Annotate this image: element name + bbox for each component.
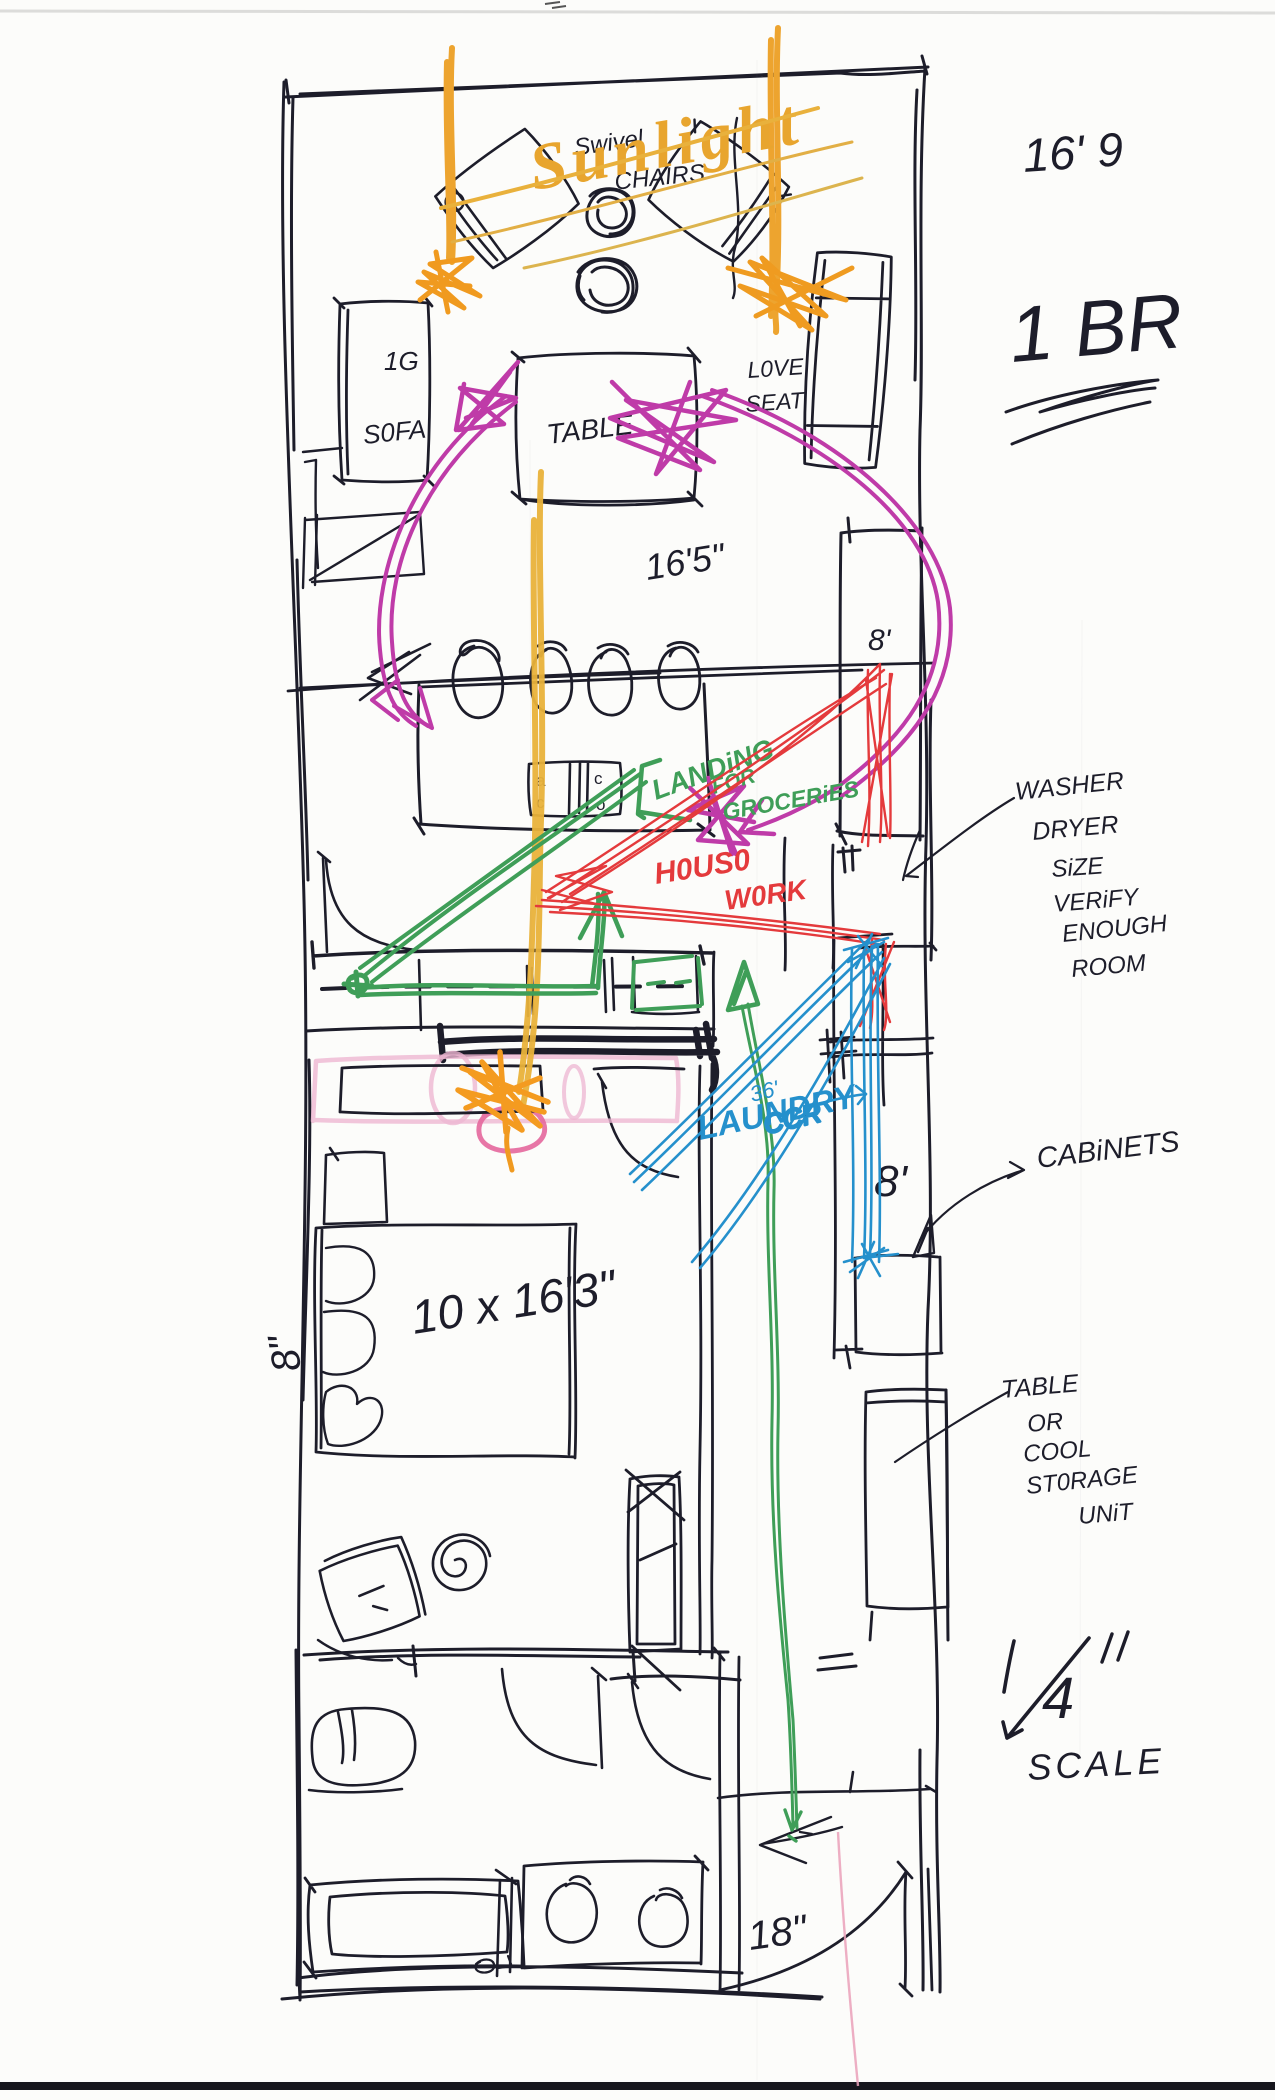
svg-text:1G: 1G: [384, 346, 419, 376]
svg-text:SEAT: SEAT: [745, 387, 807, 417]
svg-text:1 BR: 1 BR: [1006, 276, 1186, 379]
svg-text:c: c: [594, 769, 603, 788]
svg-text:16' 9: 16' 9: [1021, 122, 1125, 182]
svg-text:OR: OR: [1026, 1408, 1064, 1438]
svg-text:18": 18": [745, 1907, 811, 1959]
svg-text:4: 4: [1042, 1666, 1074, 1731]
svg-text:L0VE: L0VE: [747, 353, 806, 383]
svg-text:8': 8': [868, 624, 892, 657]
svg-text:SiZE: SiZE: [1051, 852, 1106, 883]
svg-text:UNiT: UNiT: [1077, 1498, 1136, 1530]
svg-text:SCALE: SCALE: [1026, 1740, 1166, 1788]
